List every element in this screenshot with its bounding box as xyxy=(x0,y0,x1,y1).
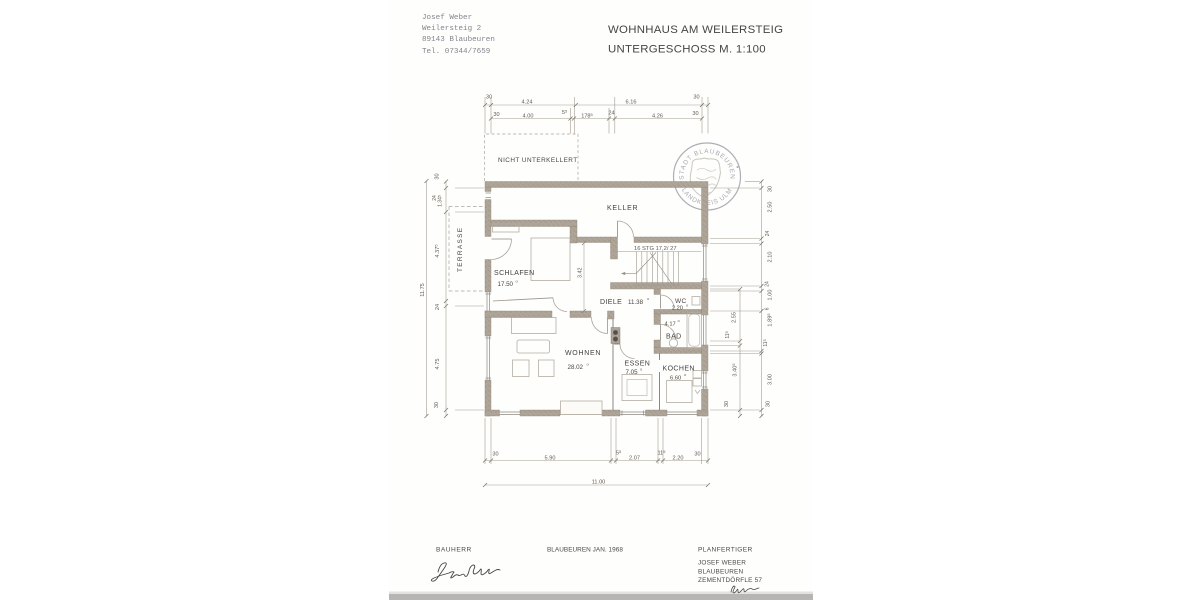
svg-text:30: 30 xyxy=(492,452,498,458)
svg-text:2.50: 2.50 xyxy=(768,202,774,213)
svg-text:BAD: BAD xyxy=(666,334,682,341)
svg-text:TERRASSE: TERRASSE xyxy=(457,227,464,272)
svg-text:17.50: 17.50 xyxy=(498,281,514,288)
svg-text:BLAUBEUREN: BLAUBEUREN xyxy=(698,569,744,576)
svg-text:4.17: 4.17 xyxy=(665,322,676,328)
svg-text:24: 24 xyxy=(765,231,771,237)
svg-text:3.00: 3.00 xyxy=(768,374,774,385)
svg-text:Josef Weber: Josef Weber xyxy=(422,14,472,22)
svg-text:1.00: 1.00 xyxy=(768,290,774,301)
svg-text:2.55: 2.55 xyxy=(732,312,738,323)
svg-text:30: 30 xyxy=(768,186,774,192)
svg-text:DIELE: DIELE xyxy=(600,299,622,306)
svg-text:6.16: 6.16 xyxy=(626,100,637,106)
svg-text:30: 30 xyxy=(435,173,441,179)
svg-text:ZEMENTDÖRFLE 57: ZEMENTDÖRFLE 57 xyxy=(698,576,762,584)
svg-text:30: 30 xyxy=(724,401,730,407)
svg-text:NICHT UNTERKELLERT: NICHT UNTERKELLERT xyxy=(498,157,578,164)
svg-text:ESSEN: ESSEN xyxy=(625,361,651,368)
svg-text:WOHNHAUS AM WEILERSTEIG: WOHNHAUS AM WEILERSTEIG xyxy=(608,24,783,36)
svg-text:4.00: 4.00 xyxy=(523,114,534,120)
svg-text:2.10: 2.10 xyxy=(768,252,774,263)
svg-text:4.24: 4.24 xyxy=(522,100,533,106)
svg-text:Tel. 07344/7659: Tel. 07344/7659 xyxy=(422,48,491,56)
svg-text:JOSEF WEBER: JOSEF WEBER xyxy=(698,560,746,567)
svg-text:6: 6 xyxy=(765,307,771,310)
svg-text:30: 30 xyxy=(692,111,698,117)
svg-text:24: 24 xyxy=(608,111,614,117)
svg-text:KOCHEN: KOCHEN xyxy=(663,366,695,373)
svg-text:SCHLAFEN: SCHLAFEN xyxy=(494,270,535,277)
svg-text:30: 30 xyxy=(766,401,772,407)
svg-text:30: 30 xyxy=(493,112,499,118)
svg-text:30: 30 xyxy=(694,452,700,458)
svg-text:PLANFERTIGER: PLANFERTIGER xyxy=(698,547,753,554)
svg-text:30: 30 xyxy=(693,95,699,101)
svg-text:16 STG 17,2/ 27: 16 STG 17,2/ 27 xyxy=(634,246,677,252)
svg-text:Weilersteig 2: Weilersteig 2 xyxy=(422,25,482,33)
svg-text:7.05: 7.05 xyxy=(626,369,639,376)
svg-text:24: 24 xyxy=(435,304,441,310)
svg-text:BAUHERR: BAUHERR xyxy=(436,547,472,554)
svg-text:BLAUBEUREN JAN. 1968: BLAUBEUREN JAN. 1968 xyxy=(547,547,623,554)
svg-text:3.42: 3.42 xyxy=(578,268,584,279)
svg-text:30: 30 xyxy=(486,95,492,101)
svg-text:11.00: 11.00 xyxy=(592,480,606,486)
svg-text:UNTERGESCHOSS M. 1:100: UNTERGESCHOSS M. 1:100 xyxy=(608,44,766,56)
svg-text:2.20: 2.20 xyxy=(672,306,683,312)
svg-text:KELLER: KELLER xyxy=(607,205,638,212)
svg-text:4.75: 4.75 xyxy=(435,359,441,370)
svg-text:5.90: 5.90 xyxy=(545,456,556,462)
svg-text:2.07: 2.07 xyxy=(629,456,640,462)
svg-text:11.38: 11.38 xyxy=(628,299,644,306)
svg-text:4.26: 4.26 xyxy=(652,114,663,120)
svg-text:28.02: 28.02 xyxy=(568,364,584,371)
svg-text:24: 24 xyxy=(765,281,771,287)
svg-text:2.20: 2.20 xyxy=(673,456,684,462)
svg-text:89143 Blaubeuren: 89143 Blaubeuren xyxy=(422,36,495,44)
svg-text:6.60: 6.60 xyxy=(670,376,681,382)
svg-text:WOHNEN: WOHNEN xyxy=(565,350,601,357)
svg-text:11.75: 11.75 xyxy=(420,283,426,297)
svg-text:30: 30 xyxy=(434,402,440,408)
svg-text:WC: WC xyxy=(675,298,687,305)
